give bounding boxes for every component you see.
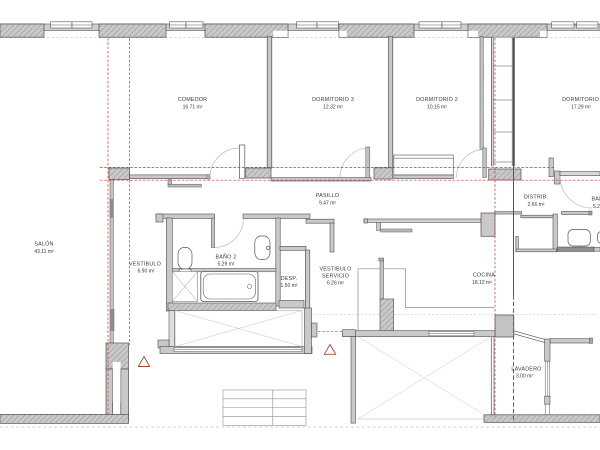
svg-text:9.47 m²: 9.47 m² (319, 201, 336, 207)
svg-text:DORMITORIO 1: DORMITORIO 1 (562, 97, 600, 103)
svg-text:DISTRIB.: DISTRIB. (524, 195, 548, 201)
svg-text:VESTÍBULO: VESTÍBULO (129, 261, 161, 268)
svg-text:SALÓN: SALÓN (34, 241, 53, 248)
svg-text:BAÑO 1: BAÑO 1 (592, 196, 600, 203)
svg-text:43.11 m²: 43.11 m² (34, 249, 54, 255)
svg-text:SERVICIO: SERVICIO (322, 274, 349, 280)
svg-text:1.50 m²: 1.50 m² (281, 283, 298, 289)
svg-text:DORMITORIO 2: DORMITORIO 2 (416, 97, 458, 103)
svg-text:COMEDOR: COMEDOR (178, 97, 208, 103)
svg-text:17.29 m²: 17.29 m² (571, 105, 591, 111)
svg-text:LAVADERO: LAVADERO (511, 367, 541, 373)
svg-text:6.26 m²: 6.26 m² (327, 281, 344, 287)
svg-text:BAÑO 2: BAÑO 2 (216, 254, 237, 261)
svg-text:5.29 m²: 5.29 m² (218, 262, 235, 268)
svg-text:12.32 m²: 12.32 m² (323, 105, 343, 111)
svg-text:10.15 m²: 10.15 m² (427, 105, 447, 111)
svg-text:VESTIBULO: VESTIBULO (319, 267, 351, 273)
svg-text:DORMITORIO 3: DORMITORIO 3 (312, 97, 354, 103)
svg-text:COCINA: COCINA (473, 273, 495, 279)
svg-text:3.00 m²: 3.00 m² (516, 374, 533, 380)
svg-text:DESP.: DESP. (281, 276, 297, 282)
svg-text:6.90 m²: 6.90 m² (138, 269, 155, 275)
svg-text:18.12 m²: 18.12 m² (472, 280, 492, 286)
svg-text:16.71 m²: 16.71 m² (183, 105, 203, 111)
svg-text:5.20 m²: 5.20 m² (593, 204, 600, 210)
svg-text:PASILLO: PASILLO (316, 193, 339, 199)
svg-text:2.66 m²: 2.66 m² (528, 202, 545, 208)
